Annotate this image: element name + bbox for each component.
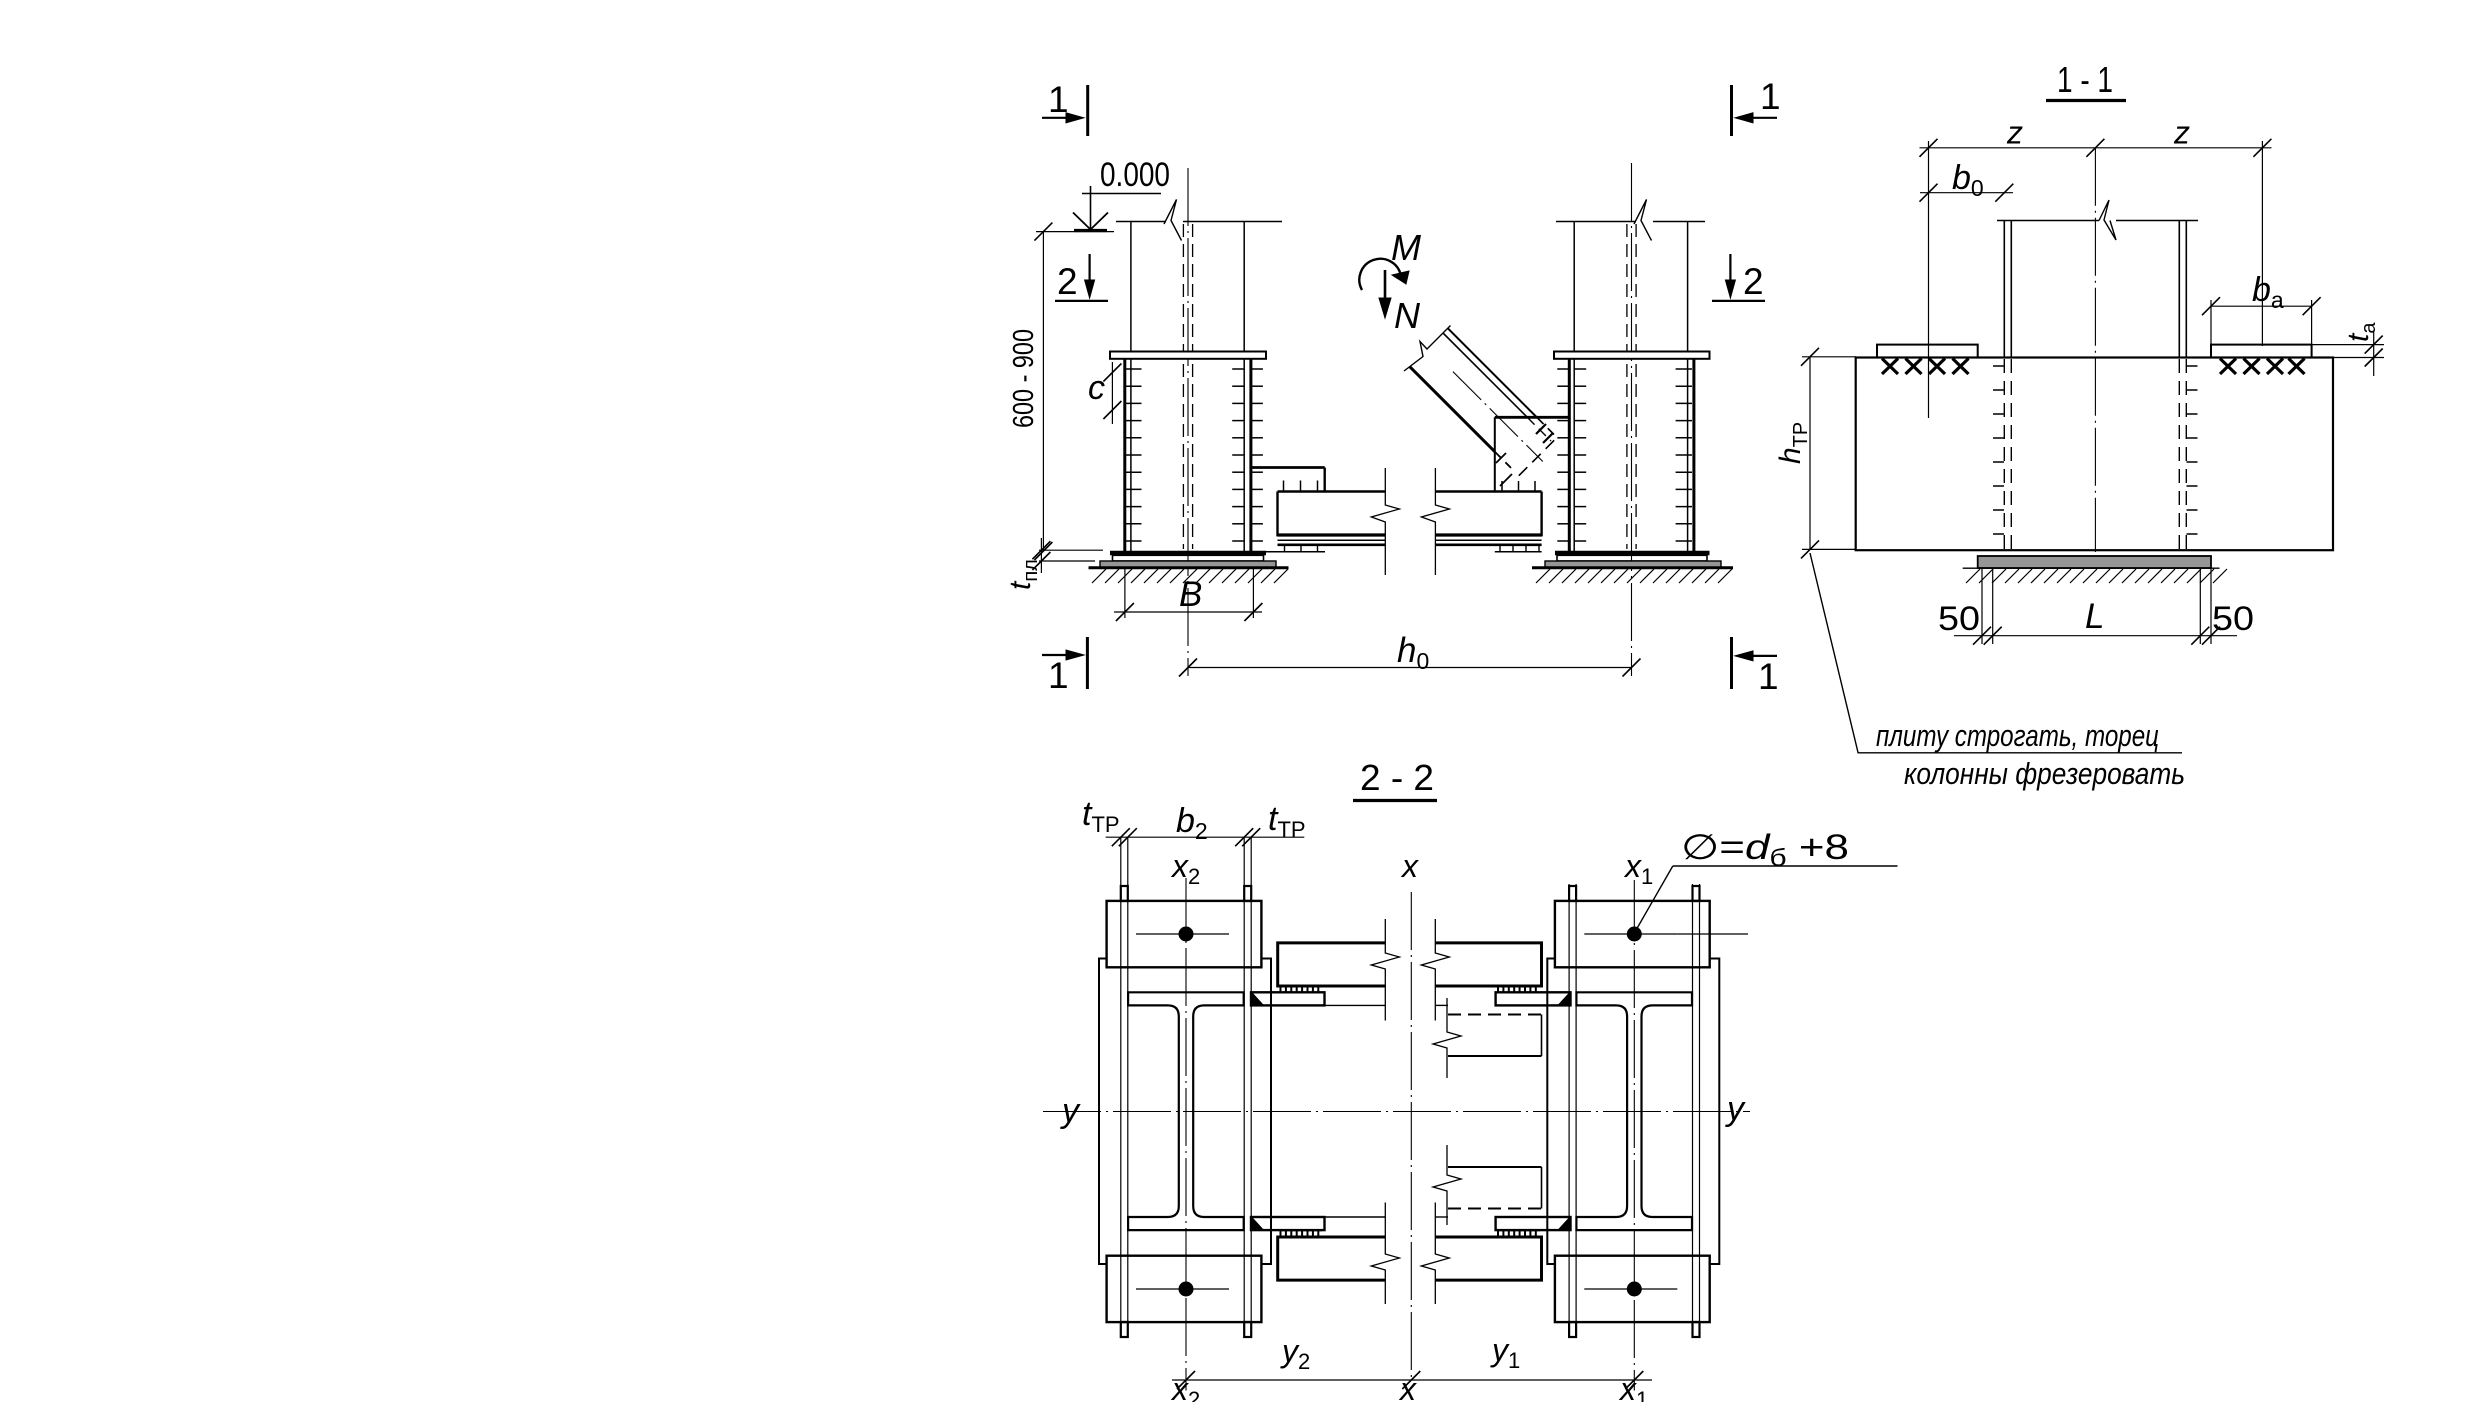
svg-text:50: 50: [2212, 600, 2254, 638]
svg-text:2: 2: [1743, 261, 1764, 302]
svg-text:M: M: [1391, 227, 1421, 268]
svg-text:1 - 1: 1 - 1: [2057, 59, 2113, 100]
svg-text:1: 1: [1760, 76, 1781, 117]
svg-text:колонны фрезеровать: колонны фрезеровать: [1904, 756, 2185, 791]
svg-text:50: 50: [1938, 600, 1980, 638]
svg-text:0.000: 0.000: [1100, 156, 1170, 194]
svg-text:L: L: [2085, 597, 2104, 636]
svg-text:y: y: [1060, 1092, 1081, 1130]
svg-text:x: x: [1398, 1371, 1417, 1402]
svg-text:2: 2: [1057, 261, 1078, 302]
svg-text:1: 1: [1758, 656, 1779, 697]
svg-text:c: c: [1088, 369, 1105, 407]
svg-text:N: N: [1394, 295, 1421, 336]
svg-text:1: 1: [1048, 79, 1069, 120]
svg-text:z: z: [2006, 115, 2023, 151]
svg-text:плиту строгать, торец: плиту строгать, торец: [1876, 718, 2159, 753]
svg-text:x: x: [1400, 848, 1419, 884]
svg-text:600 - 900: 600 - 900: [1008, 329, 1040, 428]
svg-text:B: B: [1179, 575, 1202, 614]
svg-text:∅=dб +8: ∅=dб +8: [1681, 828, 1849, 872]
svg-text:y: y: [1725, 1090, 1746, 1128]
svg-text:1: 1: [1048, 655, 1069, 696]
svg-text:2 - 2: 2 - 2: [1360, 757, 1434, 798]
svg-text:z: z: [2173, 115, 2190, 151]
